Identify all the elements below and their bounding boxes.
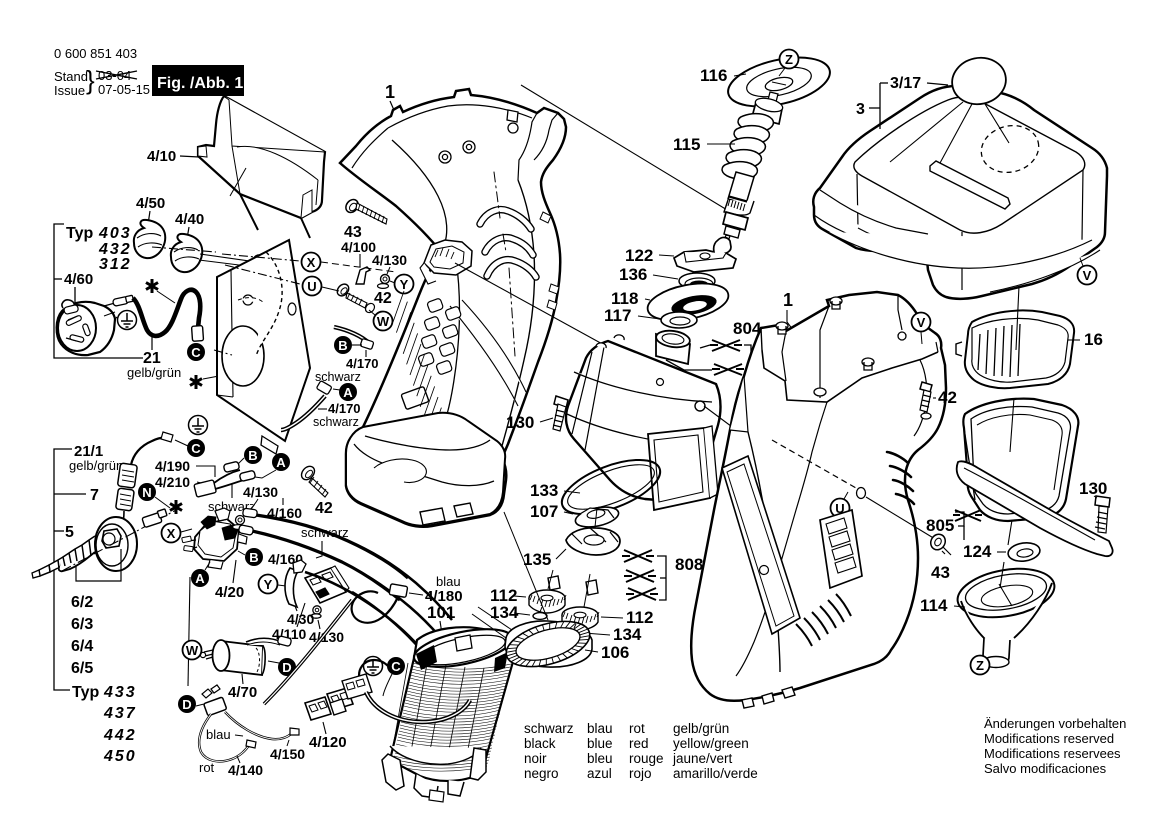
svg-text:Modifications reserved: Modifications reserved: [984, 731, 1114, 746]
svg-text:4/170: 4/170: [346, 356, 379, 371]
svg-text:rot: rot: [629, 721, 645, 736]
svg-text:rouge: rouge: [629, 751, 664, 766]
svg-text:116: 116: [700, 66, 727, 85]
svg-text:4/100: 4/100: [341, 239, 376, 255]
svg-text:A: A: [343, 385, 353, 400]
svg-text:N: N: [142, 485, 151, 500]
svg-text:4/150: 4/150: [270, 746, 305, 762]
svg-text:Y: Y: [400, 277, 409, 292]
svg-text:4/50: 4/50: [136, 195, 165, 212]
svg-text:rojo: rojo: [629, 766, 652, 781]
svg-text:blau: blau: [436, 574, 461, 589]
svg-text:6/4: 6/4: [71, 638, 93, 655]
svg-text:101: 101: [427, 603, 455, 622]
svg-text:rot: rot: [199, 760, 215, 775]
svg-text:312: 312: [99, 256, 132, 273]
svg-text:4/210: 4/210: [155, 474, 190, 490]
svg-text:134: 134: [613, 625, 642, 644]
svg-text:4/30: 4/30: [287, 611, 314, 627]
svg-text:442: 442: [103, 727, 137, 744]
svg-text:4/130: 4/130: [372, 252, 407, 268]
svg-text:Y: Y: [264, 577, 273, 592]
svg-text:4/170: 4/170: [328, 401, 361, 416]
svg-text:amarillo/verde: amarillo/verde: [673, 766, 758, 781]
svg-text:6/2: 6/2: [71, 594, 93, 611]
svg-text:42: 42: [315, 500, 333, 517]
svg-text:1: 1: [783, 290, 793, 310]
svg-text:V: V: [1083, 268, 1092, 283]
svg-text:4/160: 4/160: [267, 505, 302, 521]
svg-text:gelb/grün: gelb/grün: [127, 365, 181, 380]
svg-text:5: 5: [65, 524, 74, 541]
svg-text:4/190: 4/190: [155, 458, 190, 474]
svg-text:Typ: Typ: [66, 225, 93, 242]
svg-text:blau: blau: [206, 727, 231, 742]
svg-text:4/20: 4/20: [215, 584, 244, 601]
svg-text:jaune/vert: jaune/vert: [672, 751, 733, 766]
svg-text:106: 106: [601, 643, 629, 662]
svg-text:107: 107: [530, 502, 558, 521]
svg-text:}: }: [86, 65, 95, 95]
svg-text:X: X: [167, 526, 176, 541]
svg-text:schwarz: schwarz: [524, 721, 574, 736]
svg-text:bleu: bleu: [587, 751, 613, 766]
svg-text:noir: noir: [524, 751, 547, 766]
svg-text:Änderungen vorbehalten: Änderungen vorbehalten: [984, 716, 1126, 731]
svg-text:X: X: [307, 255, 316, 270]
svg-text:42: 42: [938, 388, 957, 407]
svg-text:437: 437: [103, 705, 137, 722]
svg-text:124: 124: [963, 542, 992, 561]
svg-text:122: 122: [625, 246, 653, 265]
svg-text:130: 130: [1079, 479, 1107, 498]
svg-text:403: 403: [98, 225, 132, 242]
svg-text:A: A: [195, 571, 205, 586]
svg-text:3: 3: [856, 101, 865, 118]
svg-text:W: W: [186, 643, 199, 658]
svg-text:red: red: [629, 736, 649, 751]
svg-text:135: 135: [523, 550, 551, 569]
svg-text:4/140: 4/140: [228, 762, 263, 778]
svg-text:16: 16: [1084, 330, 1103, 349]
svg-text:negro: negro: [524, 766, 559, 781]
svg-text:433: 433: [103, 684, 137, 701]
svg-text:azul: azul: [587, 766, 612, 781]
svg-text:Fig. /Abb. 1: Fig. /Abb. 1: [157, 75, 243, 92]
svg-text:gelb/grün: gelb/grün: [69, 458, 123, 473]
svg-text:Stand: Stand: [54, 69, 88, 84]
svg-text:42: 42: [374, 290, 392, 307]
svg-text:4/40: 4/40: [175, 211, 204, 228]
svg-text:117: 117: [604, 306, 631, 325]
svg-text:Typ: Typ: [72, 684, 99, 701]
svg-text:schwarz: schwarz: [313, 415, 359, 429]
svg-text:3/17: 3/17: [890, 75, 921, 92]
svg-text:U: U: [307, 279, 316, 294]
svg-text:Issue: Issue: [54, 83, 85, 98]
svg-text:43: 43: [931, 563, 950, 582]
svg-text:gelb/grün: gelb/grün: [673, 721, 729, 736]
svg-text:C: C: [191, 345, 201, 360]
svg-text:808: 808: [675, 555, 703, 574]
svg-text:Modifications reservees: Modifications reservees: [984, 746, 1121, 761]
svg-text:V: V: [917, 315, 926, 330]
svg-text:black: black: [524, 736, 556, 751]
svg-text:B: B: [338, 338, 347, 353]
svg-text:Z: Z: [976, 658, 984, 673]
svg-text:B: B: [249, 550, 258, 565]
svg-text:7: 7: [90, 487, 99, 504]
svg-text:blue: blue: [587, 736, 613, 751]
svg-text:W: W: [377, 314, 390, 329]
svg-text:4/10: 4/10: [147, 148, 176, 165]
svg-text:D: D: [182, 697, 191, 712]
svg-text:B: B: [248, 448, 257, 463]
svg-text:C: C: [391, 659, 401, 674]
svg-text:6/3: 6/3: [71, 616, 93, 633]
svg-text:134: 134: [490, 603, 519, 622]
svg-text:schwarz: schwarz: [301, 525, 349, 540]
svg-text:136: 136: [619, 265, 647, 284]
svg-text:114: 114: [920, 596, 948, 615]
svg-text:07-05-15: 07-05-15: [98, 82, 150, 97]
svg-text:1: 1: [385, 82, 395, 102]
svg-text:130: 130: [506, 413, 534, 432]
svg-text:C: C: [191, 441, 201, 456]
svg-text:4/120: 4/120: [309, 734, 347, 751]
svg-text:D: D: [282, 660, 291, 675]
svg-text:4/70: 4/70: [228, 684, 257, 701]
svg-text:115: 115: [673, 135, 700, 154]
svg-text:6/5: 6/5: [71, 660, 93, 677]
svg-text:Salvo modificaciones: Salvo modificaciones: [984, 761, 1107, 776]
svg-text:805: 805: [926, 516, 954, 535]
svg-text:blau: blau: [587, 721, 613, 736]
svg-text:4/130: 4/130: [243, 484, 278, 500]
svg-text:4/60: 4/60: [64, 271, 93, 288]
svg-text:450: 450: [103, 748, 137, 765]
svg-text:yellow/green: yellow/green: [673, 736, 749, 751]
svg-text:A: A: [276, 455, 286, 470]
svg-text:133: 133: [530, 481, 558, 500]
svg-text:0 600 851 403: 0 600 851 403: [54, 46, 137, 61]
svg-text:Z: Z: [785, 52, 793, 67]
